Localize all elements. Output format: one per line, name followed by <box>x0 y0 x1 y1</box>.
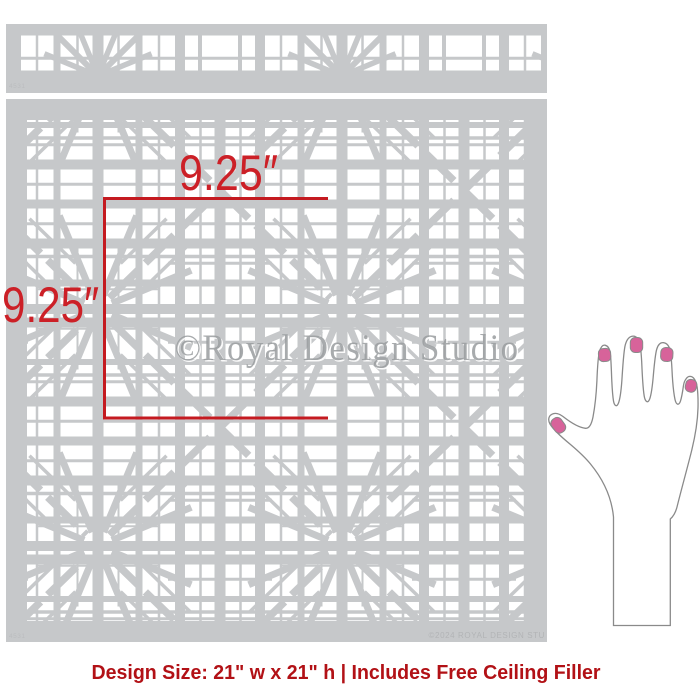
svg-text:4531: 4531 <box>9 633 25 640</box>
svg-text:Design Size: 21" w x 21" h | I: Design Size: 21" w x 21" h | Includes Fr… <box>92 661 601 684</box>
svg-text:9.25″: 9.25″ <box>2 277 99 333</box>
svg-text:©2024 ROYAL DESIGN STU: ©2024 ROYAL DESIGN STU <box>429 631 545 640</box>
svg-text:©Royal Design Studio: ©Royal Design Studio <box>175 328 520 369</box>
svg-text:4531: 4531 <box>9 83 25 90</box>
svg-text:9.25″: 9.25″ <box>179 145 278 201</box>
